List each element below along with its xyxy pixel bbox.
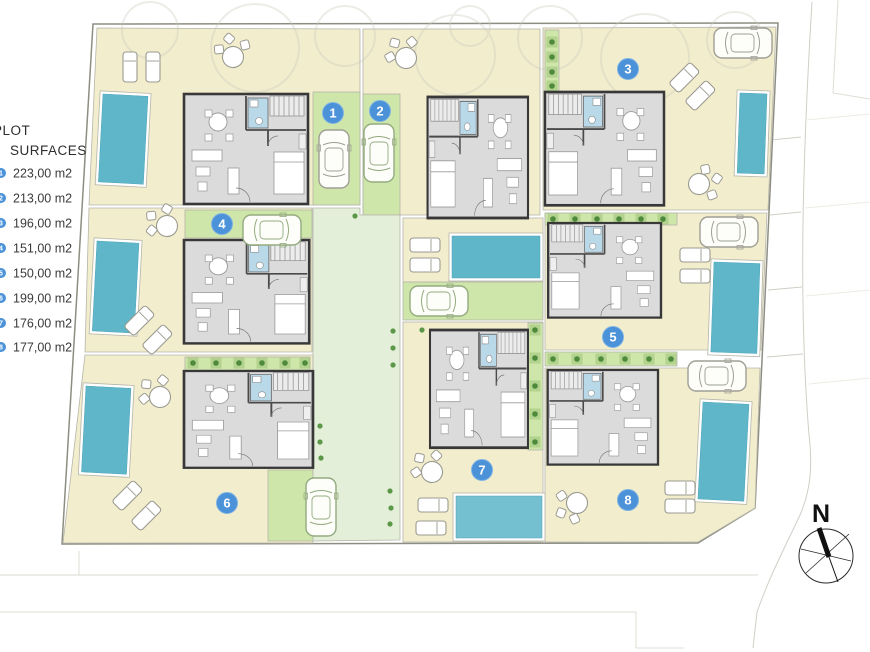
car-icon (688, 359, 746, 393)
plot-badge-4: 4 (212, 214, 233, 235)
svg-text:196,00 m2: 196,00 m2 (13, 217, 72, 231)
svg-text:8: 8 (624, 493, 631, 508)
villa-4-floorplan (184, 240, 309, 343)
legend-item: 3196,00 m2 (0, 217, 72, 231)
pool-amenity (449, 233, 543, 281)
svg-text:213,00 m2: 213,00 m2 (13, 192, 72, 206)
tree-band-5-8 (545, 352, 677, 366)
plot-badge-2: 2 (370, 101, 391, 122)
plot-badge-7: 7 (472, 460, 493, 481)
svg-text:1: 1 (0, 171, 3, 178)
car-icon (714, 26, 772, 60)
svg-text:3: 3 (624, 62, 631, 77)
legend-title-line1: PLOT (0, 123, 30, 138)
pool-5 (708, 259, 763, 357)
villa-2-floorplan (428, 97, 528, 218)
svg-text:6: 6 (0, 296, 3, 303)
svg-text:176,00 m2: 176,00 m2 (13, 317, 72, 331)
pool-1 (95, 91, 151, 188)
plot-badge-3: 3 (618, 59, 639, 80)
car-icon (410, 284, 468, 318)
legend-item: 5150,00 m2 (0, 267, 72, 281)
plot-badge-6: 6 (217, 493, 238, 514)
villa-3-floorplan (545, 92, 664, 205)
svg-text:7: 7 (0, 321, 3, 328)
plot-badge-5: 5 (603, 327, 624, 348)
site-plan-svg: 1 2 3 4 5 6 7 8 PLOT SURFACES 1223,00 m2… (0, 0, 870, 652)
legend-title-line2: SURFACES (10, 143, 87, 158)
villa-8-floorplan (548, 370, 658, 465)
car-icon (362, 124, 396, 182)
legend-item: 4151,00 m2 (0, 242, 72, 256)
svg-text:5: 5 (0, 271, 3, 278)
legend-item: 7176,00 m2 (0, 317, 72, 331)
plot-6-tree-band (185, 357, 310, 370)
compass: N (799, 500, 853, 583)
svg-text:1: 1 (329, 106, 336, 121)
plot-badge-1: 1 (323, 103, 344, 124)
svg-text:5: 5 (609, 330, 616, 345)
svg-text:3: 3 (0, 221, 3, 228)
legend-item: 2213,00 m2 (0, 192, 72, 206)
svg-text:2: 2 (376, 104, 383, 119)
villa-7-floorplan (430, 330, 528, 448)
site-plan-page: 1 2 3 4 5 6 7 8 PLOT SURFACES 1223,00 m2… (0, 0, 870, 652)
pool-6 (78, 383, 134, 478)
legend-item: 1223,00 m2 (0, 167, 72, 181)
north-arrow (819, 528, 829, 557)
svg-text:151,00 m2: 151,00 m2 (13, 242, 72, 256)
pool-7 (453, 493, 545, 541)
svg-text:177,00 m2: 177,00 m2 (13, 341, 72, 355)
svg-text:6: 6 (223, 496, 230, 511)
svg-text:8: 8 (0, 345, 3, 352)
car-icon (317, 130, 351, 188)
svg-text:223,00 m2: 223,00 m2 (13, 167, 72, 181)
pool-3 (734, 90, 770, 177)
svg-text:150,00 m2: 150,00 m2 (13, 267, 72, 281)
car-icon (304, 478, 338, 536)
svg-text:2: 2 (0, 196, 3, 203)
villa-6-floorplan (184, 371, 313, 468)
car-icon (700, 215, 758, 249)
villa-5-floorplan (548, 223, 661, 318)
legend-item: 8177,00 m2 (0, 341, 72, 355)
north-label: N (812, 500, 830, 528)
svg-text:199,00 m2: 199,00 m2 (13, 292, 72, 306)
svg-text:4: 4 (0, 246, 3, 253)
pool-8 (695, 399, 752, 505)
compass-circle (799, 529, 853, 583)
legend-item: 6199,00 m2 (0, 292, 72, 306)
svg-text:7: 7 (478, 463, 485, 478)
legend: PLOT SURFACES 1223,00 m2 2213,00 m2 3196… (0, 123, 87, 355)
car-icon (243, 213, 301, 247)
svg-text:4: 4 (218, 217, 226, 232)
plot-badge-8: 8 (618, 490, 639, 511)
villa-1-floorplan (184, 94, 308, 204)
